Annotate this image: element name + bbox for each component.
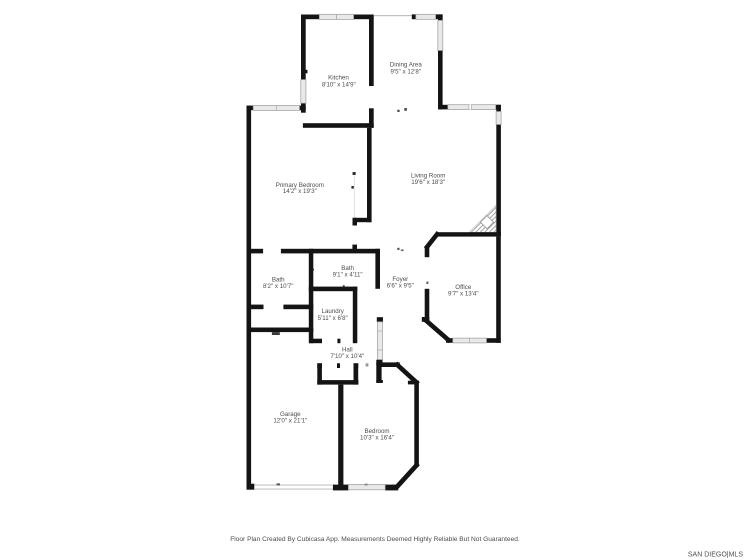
svg-text:9'7" x 13'4": 9'7" x 13'4" — [448, 291, 479, 298]
svg-text:6'6" x 9'5": 6'6" x 9'5" — [387, 282, 414, 289]
svg-text:7'10" x 10'4": 7'10" x 10'4" — [330, 353, 364, 360]
svg-text:8'2" x 10'7": 8'2" x 10'7" — [263, 283, 294, 290]
svg-text:8'10" x 14'9": 8'10" x 14'9" — [322, 81, 356, 88]
svg-text:Floor Plan Created By Cubicasa: Floor Plan Created By Cubicasa App. Meas… — [230, 536, 520, 543]
svg-text:SAN DIEGO|MLS: SAN DIEGO|MLS — [688, 552, 743, 559]
svg-text:9'1" x 4'11": 9'1" x 4'11" — [333, 272, 363, 279]
svg-text:9'5" x 12'8": 9'5" x 12'8" — [391, 68, 422, 75]
svg-text:10'3" x 16'4": 10'3" x 16'4" — [360, 435, 394, 442]
svg-text:19'6" x 18'3": 19'6" x 18'3" — [411, 179, 445, 186]
svg-text:14'2" x 19'3": 14'2" x 19'3" — [283, 188, 317, 195]
svg-text:12'0" x 21'1": 12'0" x 21'1" — [273, 417, 307, 424]
svg-text:5'11" x 6'8": 5'11" x 6'8" — [318, 315, 348, 322]
